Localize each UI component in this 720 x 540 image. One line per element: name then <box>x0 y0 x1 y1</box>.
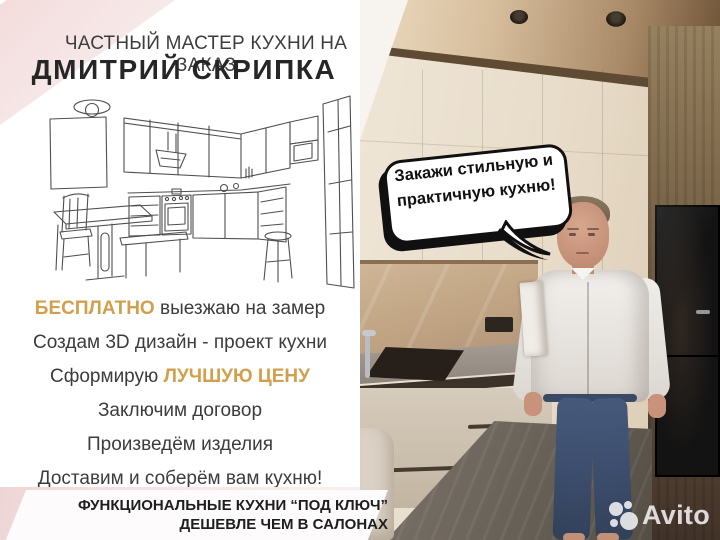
ceiling-spotlight-icon <box>510 10 528 24</box>
faucet-pipe <box>365 330 370 378</box>
faucet <box>360 330 376 380</box>
person-right-foot <box>597 533 619 540</box>
oven-display <box>696 310 710 314</box>
footer-strip: ФУНКЦИОНАЛЬНЫЕ КУХНИ “ПОД КЛЮЧ” ДЕШЕВЛЕ … <box>0 487 360 540</box>
jeans-left-leg <box>553 397 595 540</box>
kitchen-photo: Закажи стильную и практичную кухню! Avit… <box>360 0 720 540</box>
benefit-best-price: Сформирую ЛУЧШУЮ ЦЕНУ <box>0 360 360 394</box>
ad-title: ДМИТРИЙ СКРИПКА <box>18 54 350 86</box>
power-outlet <box>485 317 513 332</box>
ad-poster: ЧАСТНЫЙ МАСТЕР КУХНИ НА ЗАКАЗ ДМИТРИЙ СК… <box>0 0 720 540</box>
benefits-list: БЕСПЛАТНО выезжаю на замер Создам 3D диз… <box>0 292 360 496</box>
left-panel: ЧАСТНЫЙ МАСТЕР КУХНИ НА ЗАКАЗ ДМИТРИЙ СК… <box>0 0 360 540</box>
benefit-3d-design: Создам 3D дизайн - проект кухни <box>0 326 360 360</box>
avito-logo-icon <box>606 498 640 532</box>
footer-line2: ДЕШЕВЛЕ ЧЕМ В САЛОНАХ <box>8 516 388 533</box>
person-right-hand <box>648 394 666 418</box>
speech-bubble-tail <box>494 220 554 266</box>
kitchen-sketch-illustration <box>28 92 360 292</box>
benefit-text: Сформирую <box>50 366 158 387</box>
speech-bubble: Закажи стильную и практичную кухню! <box>376 142 591 272</box>
benefit-production: Произведём изделия <box>0 428 360 462</box>
avito-logo-text: Avito <box>642 500 710 531</box>
shirt-placket <box>587 282 589 398</box>
person-shirt <box>531 270 649 402</box>
avito-watermark: Avito <box>606 496 718 534</box>
marble-backsplash <box>360 263 538 355</box>
benefit-contract: Заключим договор <box>0 394 360 428</box>
benefit-text: выезжаю на замер <box>160 298 325 319</box>
person-left-foot <box>563 533 585 540</box>
benefit-highlight: БЕСПЛАТНО <box>35 298 155 319</box>
faucet-spout <box>362 330 376 336</box>
footer-line1: ФУНКЦИОНАЛЬНЫЕ КУХНИ “ПОД КЛЮЧ” <box>8 497 388 514</box>
benefit-free-measure: БЕСПЛАТНО выезжаю на замер <box>0 292 360 326</box>
benefit-highlight: ЛУЧШУЮ ЦЕНУ <box>164 366 310 387</box>
ceiling-spotlight-icon <box>606 11 626 26</box>
person-left-hand <box>524 392 542 416</box>
